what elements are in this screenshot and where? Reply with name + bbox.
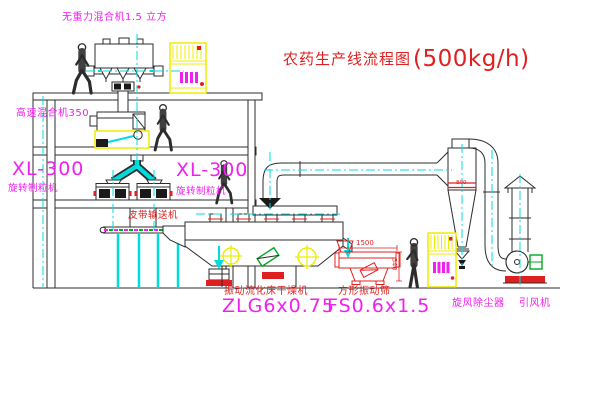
fluid-bed-dryer-machine (185, 206, 352, 287)
label-dryer-model: ZLG6x0.75 (222, 297, 335, 316)
screen-vibration-motor (360, 263, 378, 278)
label-cyclone: 旋风除尘器 (452, 299, 505, 309)
dim-screen-height: 340 (391, 258, 398, 270)
diagram-title: 农药生产线流程图(500kg/h) (283, 48, 530, 71)
title-text: 农药生产线流程图 (283, 52, 411, 67)
belt-conveyor-machine (100, 226, 185, 287)
induced-draft-fan (503, 251, 547, 283)
label-gravity-mixer: 无重力混合机1.5 立方 (62, 13, 167, 23)
label-granulator-right-model: XL-300 (176, 161, 248, 180)
flow-diagram: 农药生产线流程图(500kg/h) 无重力混合机1.5 立方 高速混合机350 … (0, 0, 600, 403)
control-cabinet-top (170, 43, 206, 93)
label-screen-model: FS0.6x1.5 (327, 297, 430, 316)
title-capacity: (500kg/h) (413, 48, 530, 71)
person-figure-ground (407, 239, 417, 287)
exhaust-duct (259, 152, 448, 209)
dim-cyclone-diameter: 800 (456, 181, 467, 187)
label-belt-conveyor: 皮带输送机 (128, 211, 178, 221)
label-high-speed-mixer: 高速混合机350 (16, 109, 89, 119)
control-cabinet-bottom (428, 233, 456, 287)
person-figure-second-floor (155, 105, 171, 150)
dim-screen-length: 1500 (356, 240, 374, 247)
gravity-mixer-machine (85, 38, 163, 112)
label-granulator-left-model: XL-300 (12, 160, 84, 179)
label-granulator-right-name: 旋转制粒机 (176, 187, 226, 197)
label-granulator-left-name: 旋转制粒机 (8, 184, 58, 194)
label-fan: 引风机 (519, 299, 551, 309)
